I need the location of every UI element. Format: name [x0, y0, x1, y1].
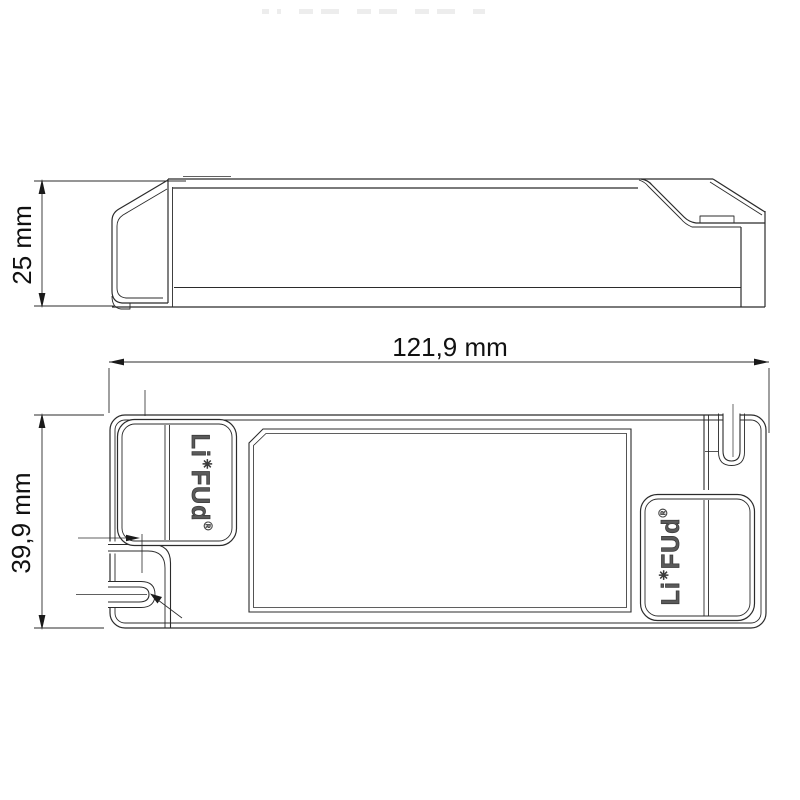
terminal-clip-detail	[700, 216, 734, 223]
arrow-left-icon	[109, 359, 124, 366]
mounting-slot-bottom-left	[76, 581, 155, 608]
leader-arrows	[78, 534, 182, 618]
plan-view-label-area	[249, 429, 631, 612]
side-view-profile	[112, 177, 765, 310]
flower-mark-icon: ✳	[200, 459, 214, 469]
mounting-foot-slit	[107, 542, 171, 629]
brand-logo-top-left: Li✳FUd®	[184, 427, 216, 537]
drawing-svg	[0, 0, 800, 800]
flower-mark-icon: ✳	[657, 570, 671, 580]
registered-mark-icon: ®	[201, 522, 215, 531]
side-view-height-dimension-label: 25 mm	[6, 175, 38, 315]
technical-drawing-canvas: 25 mm 121,9 mm 39,9 mm Li✳FUd® Li✳FUd®	[0, 0, 800, 800]
brand-logo-bottom-right: Li✳FUd®	[655, 502, 687, 612]
mounting-slot-top-right	[704, 404, 745, 490]
plan-view-height-dimension-label: 39,9 mm	[5, 453, 37, 593]
arrow-right-icon	[754, 359, 769, 366]
brand-prefix: Li	[186, 434, 215, 458]
side-view-dimension-25mm	[34, 179, 186, 308]
brand-suffix: FUd	[657, 517, 686, 569]
plan-view-dimension-height	[34, 413, 104, 630]
brand-prefix: Li	[657, 581, 686, 605]
terminal-cover-top-left	[118, 420, 237, 546]
brand-suffix: FUd	[186, 470, 215, 522]
plan-view-width-dimension-label: 121,9 mm	[350, 331, 550, 363]
registered-mark-icon: ®	[656, 509, 670, 518]
